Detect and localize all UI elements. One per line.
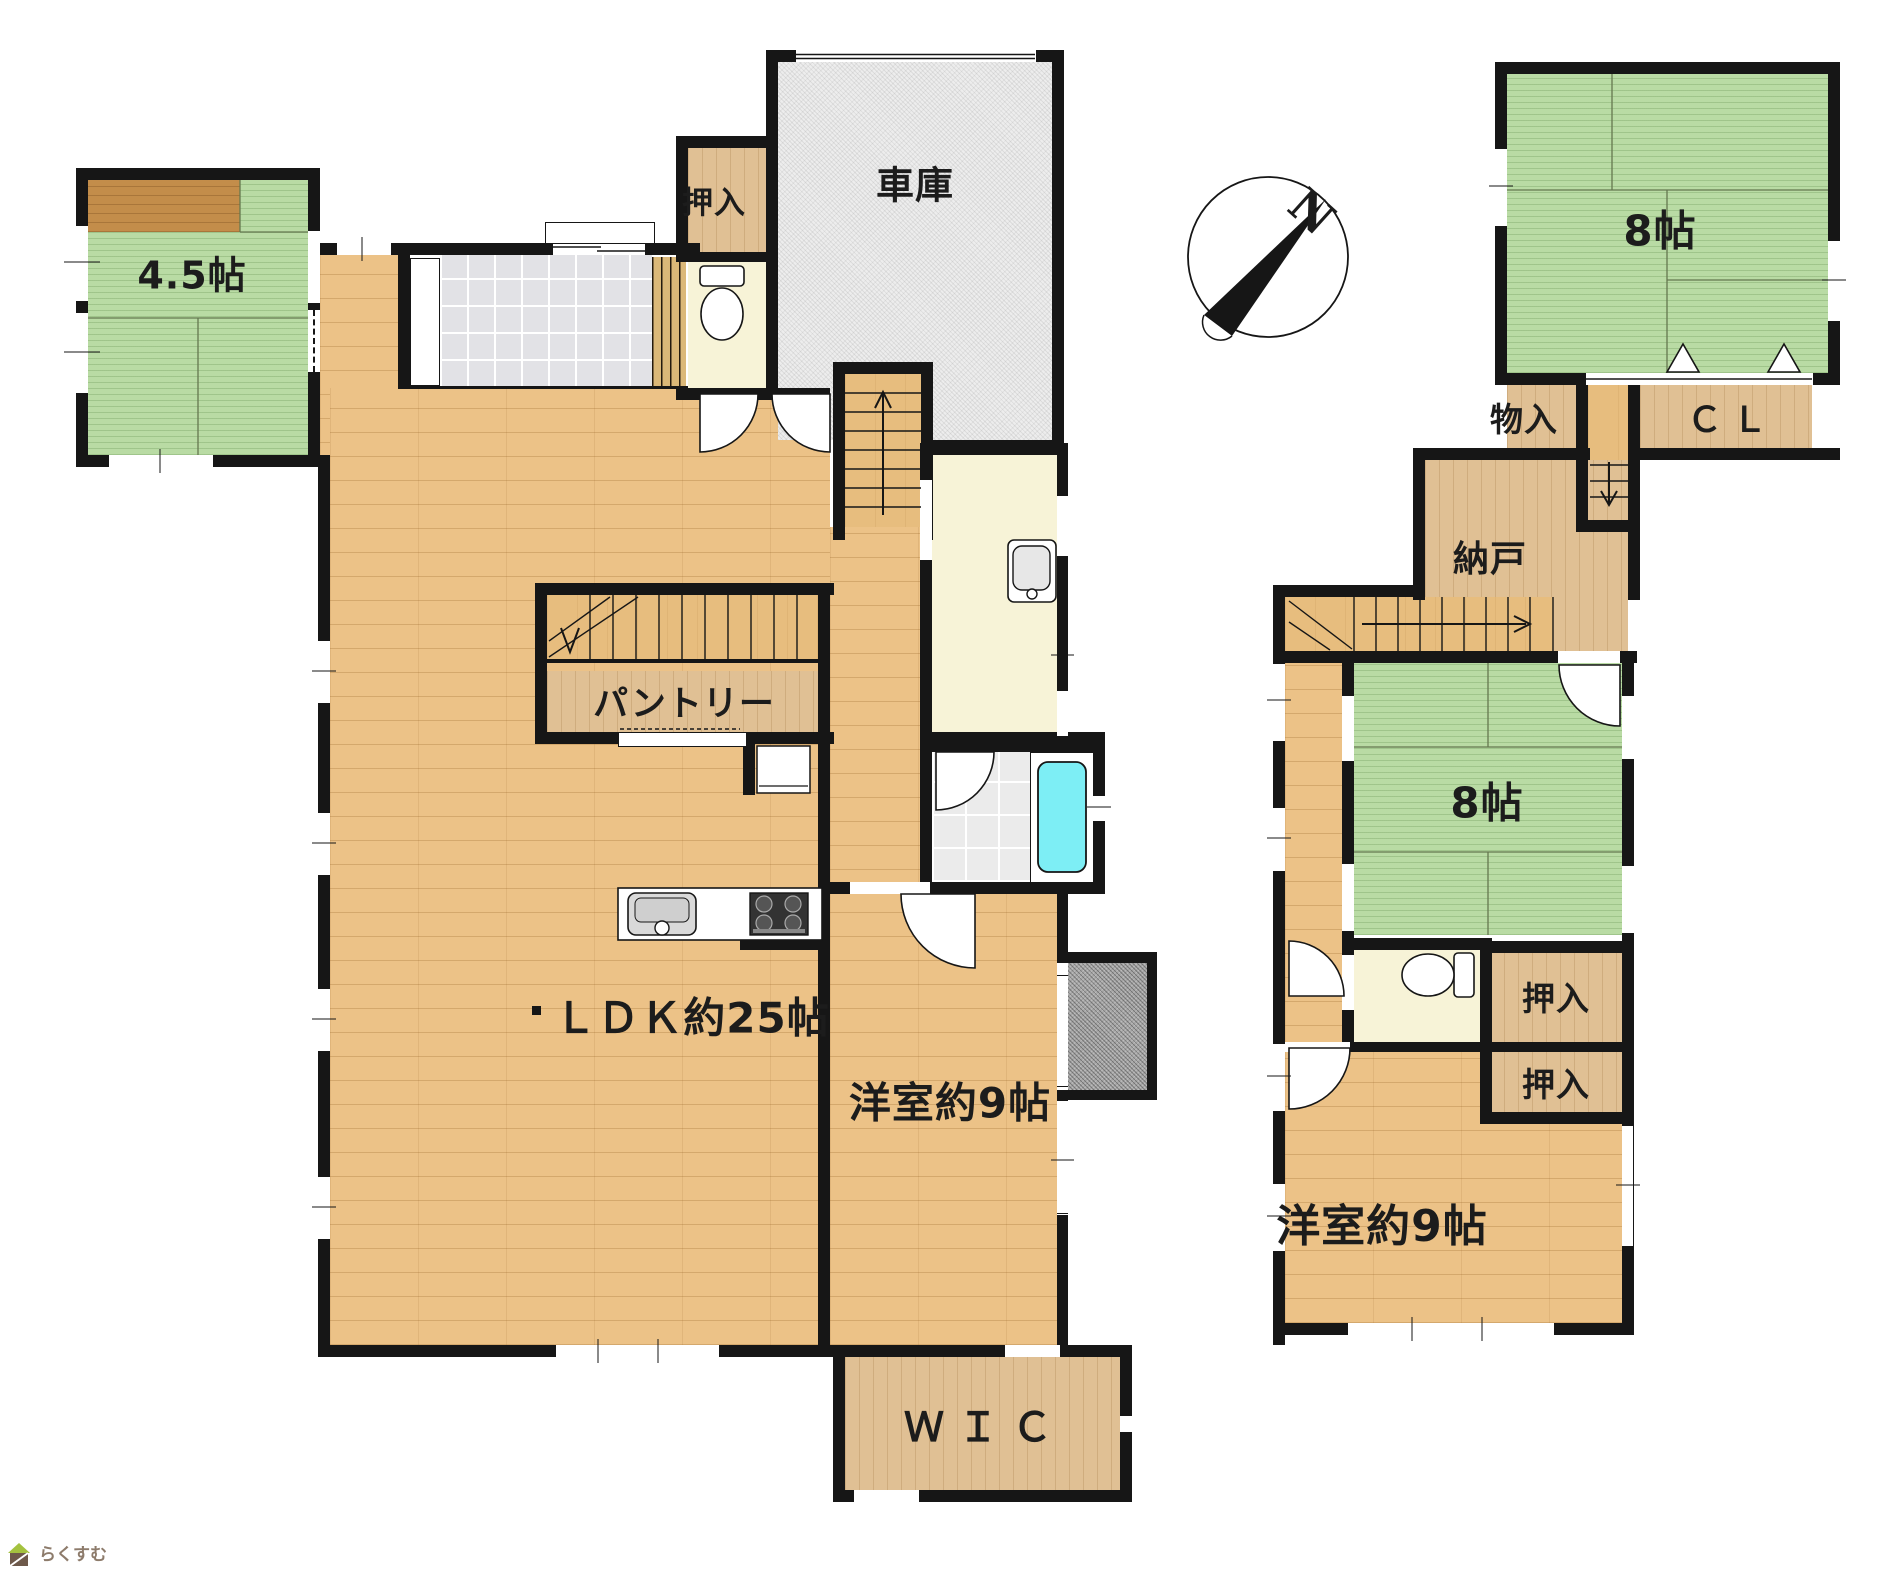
room-label-oshiire-1f: 押入 (682, 178, 746, 223)
floor-plan: 4.5帖 押入 車庫 パントリー ＬＤＫ約25帖 洋室約9帖 ＷＩＣ 8帖 物入… (0, 0, 1903, 1574)
bathroom-1f (932, 752, 1030, 882)
room-label-tatami45: 4.5帖 (137, 245, 246, 300)
compass-north-label: N (1278, 178, 1346, 247)
room-label-western-2f: 洋室約9帖 (1276, 1190, 1488, 1254)
stairs-1f-garage-side (845, 374, 921, 527)
logo-text: らくすむ (39, 1540, 107, 1565)
toilet-2f (1354, 950, 1480, 1042)
entry-genkan (440, 255, 652, 388)
room-label-tatami8-north: 8帖 (1623, 198, 1696, 259)
room-label-oshiire-2f-lower: 押入 (1522, 1058, 1590, 1106)
pantry-counter (618, 732, 747, 747)
room-label-cl: ＣＬ (1687, 392, 1777, 443)
entry-porch-step (545, 222, 655, 244)
bathtub-deck (1030, 752, 1095, 884)
room-label-pantry: パントリー (593, 676, 775, 727)
site-logo: らくすむ (8, 1540, 107, 1565)
hallway-2f (1285, 663, 1345, 1050)
entry-step-slats (652, 257, 686, 386)
room-label-nando: 納戸 (1453, 530, 1527, 582)
balcony-1f (1068, 963, 1147, 1090)
toilet-1f (688, 262, 766, 388)
room-label-garage: 車庫 (876, 155, 954, 210)
washroom-1f (932, 455, 1057, 732)
corridor-mid (830, 527, 920, 894)
hall-ldk-floor (330, 388, 830, 1345)
room-label-tatami8-south: 8帖 (1450, 770, 1523, 831)
stairs-1f-main (547, 595, 822, 659)
room-label-western-1f: 洋室約9帖 (849, 1070, 1051, 1131)
room-label-monoire: 物入 (1490, 393, 1558, 441)
room-label-ldk: ＬＤＫ約25帖 (554, 985, 829, 1046)
room-label-oshiire-2f-upper: 押入 (1522, 972, 1590, 1020)
ldk-bullet (532, 1006, 541, 1015)
room-label-wic: ＷＩＣ (904, 1395, 1066, 1453)
stairs-2f-main (1285, 597, 1553, 651)
shoe-cabinet (410, 258, 440, 386)
tatami-room-wood-strip (88, 180, 240, 232)
